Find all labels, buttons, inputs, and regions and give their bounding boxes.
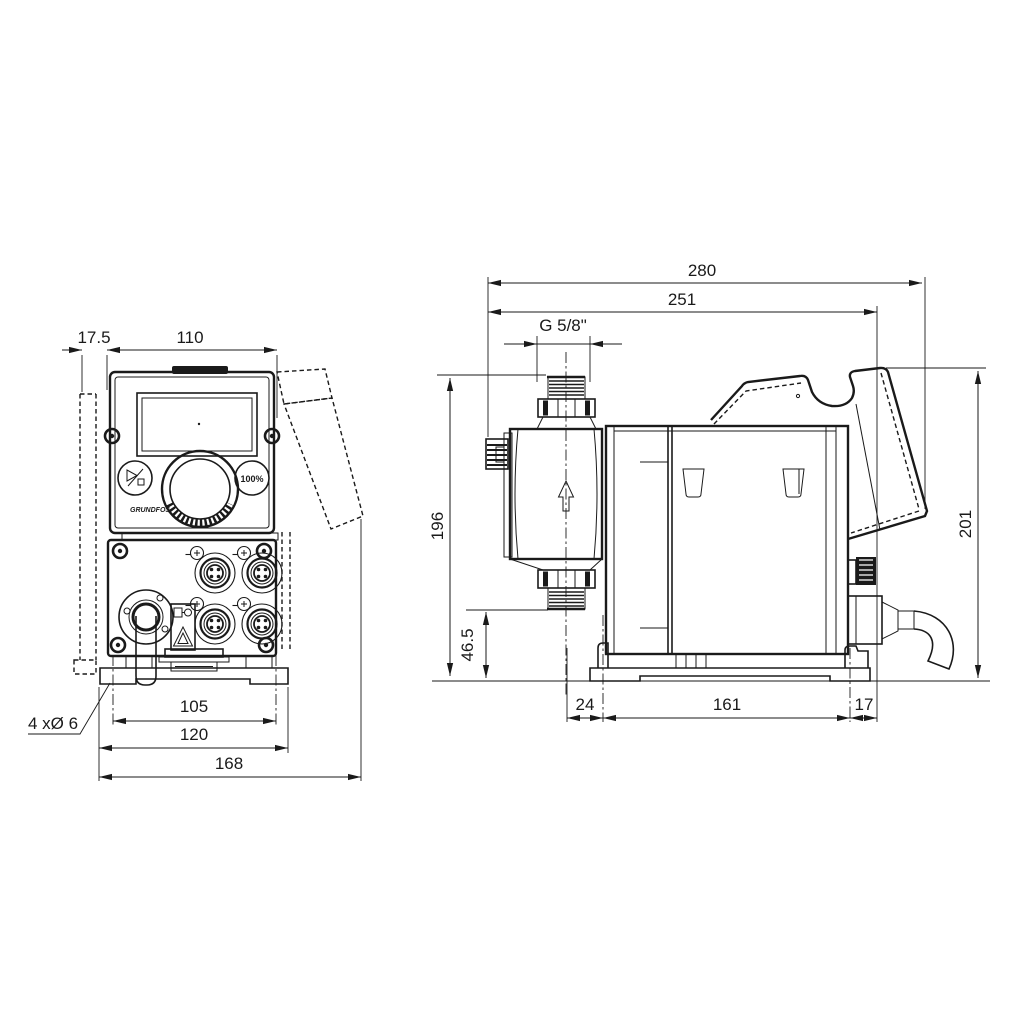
inlet-connection: [537, 377, 596, 429]
start-stop-button[interactable]: [118, 461, 152, 495]
plug-icon: [174, 608, 192, 617]
capacity-button-label: 100%: [240, 474, 263, 484]
left-foot: [126, 656, 152, 668]
control-cube-rotated-outline: [277, 369, 363, 652]
control-panel: 100% GRUNDFOS: [105, 366, 279, 540]
dim-base-hole-spacing: 161: [713, 695, 741, 714]
mounting-slot: [683, 469, 704, 497]
outlet-connection: [510, 559, 602, 609]
wall-mounting-plate: [74, 394, 96, 674]
technical-drawing-page: 100% GRUNDFOS: [0, 0, 1024, 1024]
inlet-thread: [549, 381, 584, 395]
dim-overall-height: 201: [956, 510, 975, 538]
mounting-holes-callout: 4 xØ 6: [28, 683, 110, 734]
dim-foot-hole-spacing: 105: [180, 697, 208, 716]
dim-outlet-height: 46.5: [458, 628, 477, 661]
front-view: 100% GRUNDFOS: [74, 366, 363, 685]
outlet-thread: [549, 592, 584, 606]
side-base-plate: [590, 668, 870, 681]
dim-base-offset-front: 24: [576, 695, 595, 714]
play-stop-icon: [127, 469, 144, 486]
right-foot: [246, 656, 272, 668]
warning-label: [171, 604, 195, 650]
dim-base-offset-rear: 17: [855, 695, 874, 714]
dim-connection-thread: G 5/8": [539, 316, 587, 335]
cable-gland: [119, 590, 173, 685]
mounting-slot: [783, 469, 804, 497]
vent-valve-knob[interactable]: [486, 439, 508, 469]
dim-overall-width: 280: [688, 261, 716, 280]
dim-wall-plate-depth: 17.5: [77, 328, 110, 347]
connection-housing: [108, 540, 282, 685]
capacity-button[interactable]: 100%: [235, 461, 269, 495]
front-base-plate: [100, 668, 288, 684]
control-cube: [711, 368, 927, 539]
grundfos-logo: GRUNDFOS: [130, 507, 170, 514]
drive-housing: [598, 426, 868, 668]
click-wheel[interactable]: [162, 451, 238, 527]
dim-front-width: 110: [176, 328, 203, 347]
dim-foot-width: 120: [180, 725, 208, 744]
dimensions: 280 251 G 5/8" 17.5 110 196 46.5 201: [28, 261, 986, 781]
warning-triangle-icon: [174, 627, 193, 646]
dim-mounting-holes: 4 xØ 6: [28, 714, 78, 733]
pump-dimensional-drawing: 100% GRUNDFOS: [0, 0, 1024, 1024]
dim-width-to-base-end: 251: [668, 290, 696, 309]
signal-cable-gland: [848, 557, 953, 669]
dim-overall-depth: 168: [215, 754, 243, 773]
dosing-head: [486, 429, 602, 559]
signal-cable: [914, 611, 953, 669]
display: [137, 393, 257, 456]
side-view: [432, 352, 990, 696]
dim-inlet-height: 196: [428, 512, 447, 540]
